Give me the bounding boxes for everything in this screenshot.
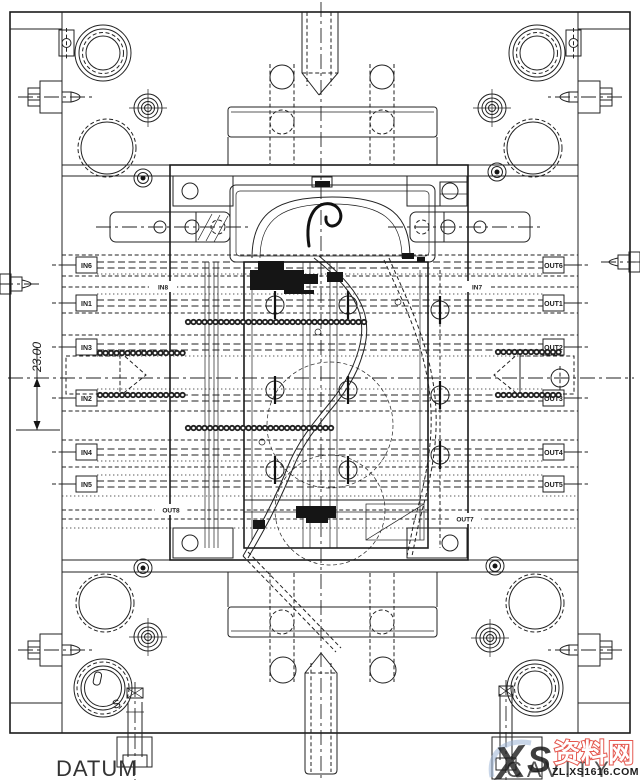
port-label-out: OUT1: [544, 301, 563, 308]
core-assembly: [62, 165, 578, 652]
mold-assembly-drawing: IN6 OUT6 IN1 OUT1 IN3 OUT2: [0, 0, 640, 780]
port-label-in: IN6: [81, 263, 92, 270]
dimension-value: 23.00: [30, 342, 44, 373]
inner-label: OUT8: [162, 508, 180, 515]
port-label-out: OUT5: [544, 482, 563, 489]
guide-bushing-bottom-right: [506, 574, 564, 716]
dimension-annotation: 23.00: [16, 342, 60, 430]
guide-bushings: [75, 25, 565, 716]
cooling-circuits: IN6 OUT6 IN1 OUT1 IN3 OUT2: [52, 257, 588, 492]
date-stamp: S: [74, 659, 132, 717]
watermark-logo-s: S: [527, 739, 551, 780]
cooling-line-row: IN5 OUT5: [52, 475, 588, 492]
guide-bushing-bottom-left: [76, 574, 134, 632]
port-label-out: OUT6: [544, 263, 563, 270]
mold-base-plate: [10, 12, 630, 733]
drawing-canvas: IN6 OUT6 IN1 OUT1 IN3 OUT2: [0, 0, 640, 780]
watermark-site-url: ZL.XS1616.COM: [552, 766, 639, 778]
watermark-site-name: 资料网: [554, 738, 635, 768]
screw-head: [473, 89, 511, 127]
guide-bushing-top-left: [75, 25, 136, 177]
inner-label: IN8: [158, 285, 169, 292]
port-label-in: IN4: [81, 450, 92, 457]
screw-head: [471, 619, 509, 657]
port-label-in: IN5: [81, 482, 92, 489]
port-label-in: IN1: [81, 301, 92, 308]
cooling-line-row: IN1 OUT1: [52, 294, 588, 311]
cooling-line-row: IN4 OUT4: [52, 444, 588, 461]
screw-head: [129, 618, 167, 656]
inner-label: OUT7: [456, 517, 474, 524]
guide-bushing-top-right: [504, 25, 565, 177]
top-ejector-assembly: [228, 12, 437, 165]
port-label-in: IN3: [81, 345, 92, 352]
inner-label: IN7: [472, 285, 483, 292]
port-label-out: OUT4: [544, 450, 563, 457]
datum-label: DATUM: [56, 756, 138, 780]
bottom-ejector-assembly: [228, 572, 437, 774]
watermark: X S 资料网 ZL.XS1616.COM: [489, 734, 639, 780]
cooling-line-row: IN6 OUT6: [52, 257, 588, 274]
screw-head: [129, 89, 167, 127]
port-label-in: IN2: [81, 396, 92, 403]
support-cylinder-left: [96, 212, 252, 242]
date-stamp-mark: S: [110, 696, 122, 712]
